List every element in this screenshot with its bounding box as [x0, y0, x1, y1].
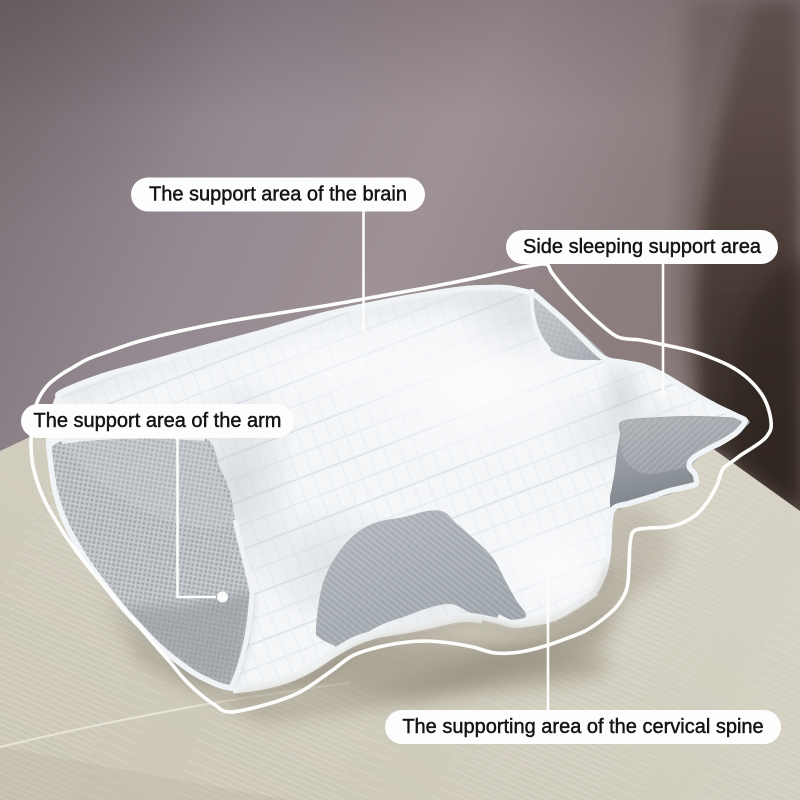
svg-text:Side sleeping support area: Side sleeping support area [523, 236, 762, 258]
svg-text:The support area of the brain: The support area of the brain [149, 184, 407, 206]
svg-text:The support area of the arm: The support area of the arm [34, 410, 282, 432]
svg-text:The supporting area of the cer: The supporting area of the cervical spin… [402, 716, 763, 738]
